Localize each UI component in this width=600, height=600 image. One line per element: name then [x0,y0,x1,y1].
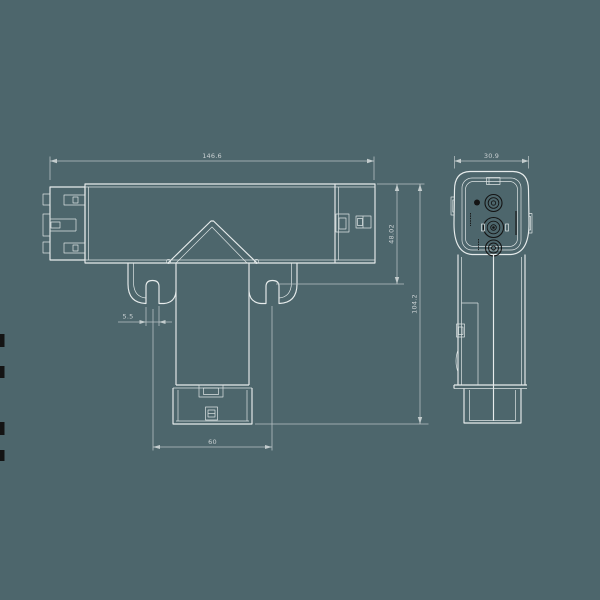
front-hook-left [128,263,176,304]
dim-label-hook-spacing: 60 [208,438,217,446]
side-view: 30.9 [451,152,532,423]
side-body [454,255,527,422]
front-stem [173,263,252,424]
dim-label-overall-width: 146.6 [202,152,222,160]
drawing-canvas: 146.6 48.02 104.2 5.5 [0,0,600,600]
dim-arm-height: 48.02 [276,184,425,284]
front-arm-body [85,184,375,263]
drawing-svg: 146.6 48.02 104.2 5.5 [0,0,600,600]
front-view: 146.6 48.02 104.2 5.5 [43,152,429,451]
front-left-connector [43,187,85,260]
front-hook-right [249,263,297,304]
front-roof [166,221,258,264]
dim-overall-height: 104.2 [255,184,429,424]
dim-slot-width: 5.5 [118,306,172,326]
side-head [451,172,532,255]
edge-artifacts [0,334,5,461]
side-index-dot [474,200,480,206]
dim-overall-depth: 30.9 [455,152,529,169]
dim-label-overall-height: 104.2 [411,294,419,314]
dim-label-slot-width: 5.5 [123,313,134,321]
side-bottom-block [464,389,521,424]
dim-hook-spacing: 60 [153,306,272,451]
front-right-endcap [336,214,371,232]
dim-overall-width: 146.6 [50,152,374,180]
dim-label-arm-height: 48.02 [388,224,396,244]
dim-label-overall-depth: 30.9 [484,152,499,160]
